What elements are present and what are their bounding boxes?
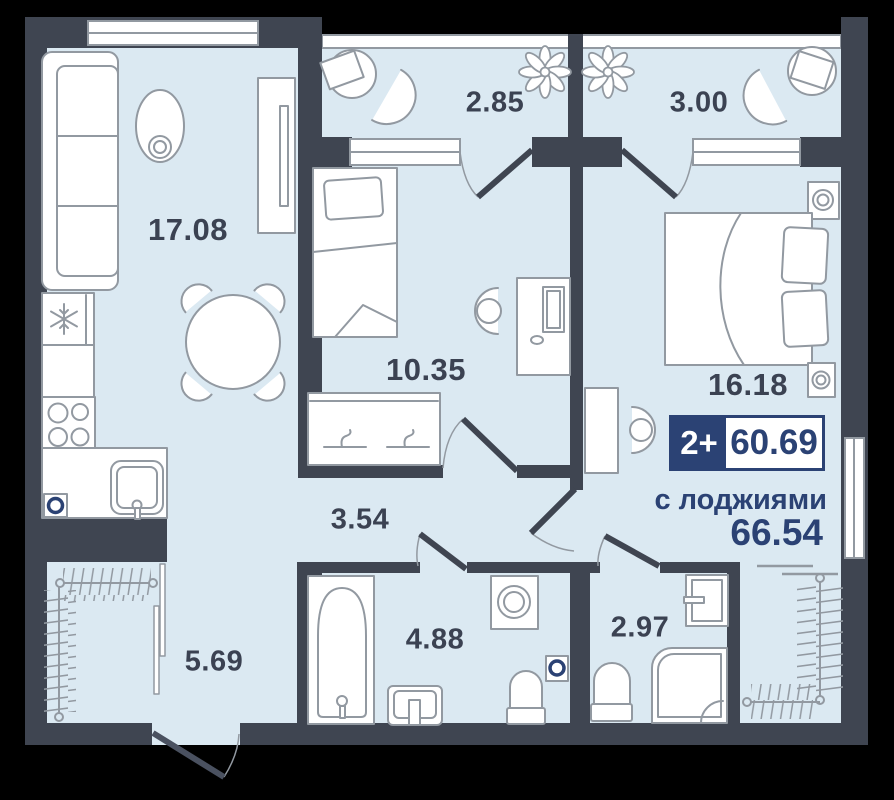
toilet-bathroom	[507, 671, 545, 724]
floor-plan-screenshot: 17.08 2.85 3.00 10.35 16.18 3.54 5.69 4.…	[0, 0, 894, 800]
plant-flower-icon	[582, 46, 634, 98]
wardrobe	[308, 393, 440, 465]
plant-flower-icon	[519, 46, 571, 98]
room-area-hallway: 3.54	[331, 504, 389, 537]
pillow	[782, 290, 829, 347]
tv-cabinet	[258, 78, 295, 233]
room-area-balcony-right: 3.00	[670, 87, 728, 120]
wall-cabinet	[684, 575, 728, 626]
water-outlet	[546, 656, 568, 681]
sofa	[42, 52, 118, 290]
single-bed	[313, 168, 397, 337]
room-area-bathroom: 4.88	[406, 624, 464, 657]
room-area-bedroom-master: 16.18	[708, 367, 788, 403]
room-area-living-kitchen: 17.08	[148, 212, 228, 248]
bathtub	[308, 576, 374, 724]
room-area-wc-shower: 2.97	[611, 612, 669, 645]
rooms-count-label: 2+	[672, 418, 726, 468]
room-area-balcony-left: 2.85	[466, 87, 524, 120]
kitchen-counter	[42, 345, 94, 397]
kitchen-sink-counter	[42, 448, 167, 519]
toilet-wc	[591, 663, 632, 721]
desk	[517, 278, 570, 375]
desk-master	[585, 388, 618, 473]
apartment-type-badge: 2+ 60.69	[669, 415, 825, 471]
pillow	[324, 177, 384, 220]
dining-table	[186, 295, 280, 389]
plant-pot	[136, 90, 184, 162]
room-area-bedroom-small: 10.35	[386, 352, 466, 388]
room-area-loggia: 5.69	[185, 646, 243, 679]
wash-basin	[388, 686, 442, 725]
fridge	[42, 293, 94, 345]
washing-machine	[491, 576, 538, 629]
total-area-value: 60.69	[726, 418, 822, 468]
double-bed	[665, 213, 828, 365]
shower-cabin	[652, 648, 727, 723]
area-with-loggias-value: 66.54	[645, 512, 823, 554]
drying-rack-icon	[63, 568, 151, 601]
nightstand-bottom	[808, 363, 835, 397]
stove	[42, 397, 95, 448]
pillow	[782, 227, 829, 284]
